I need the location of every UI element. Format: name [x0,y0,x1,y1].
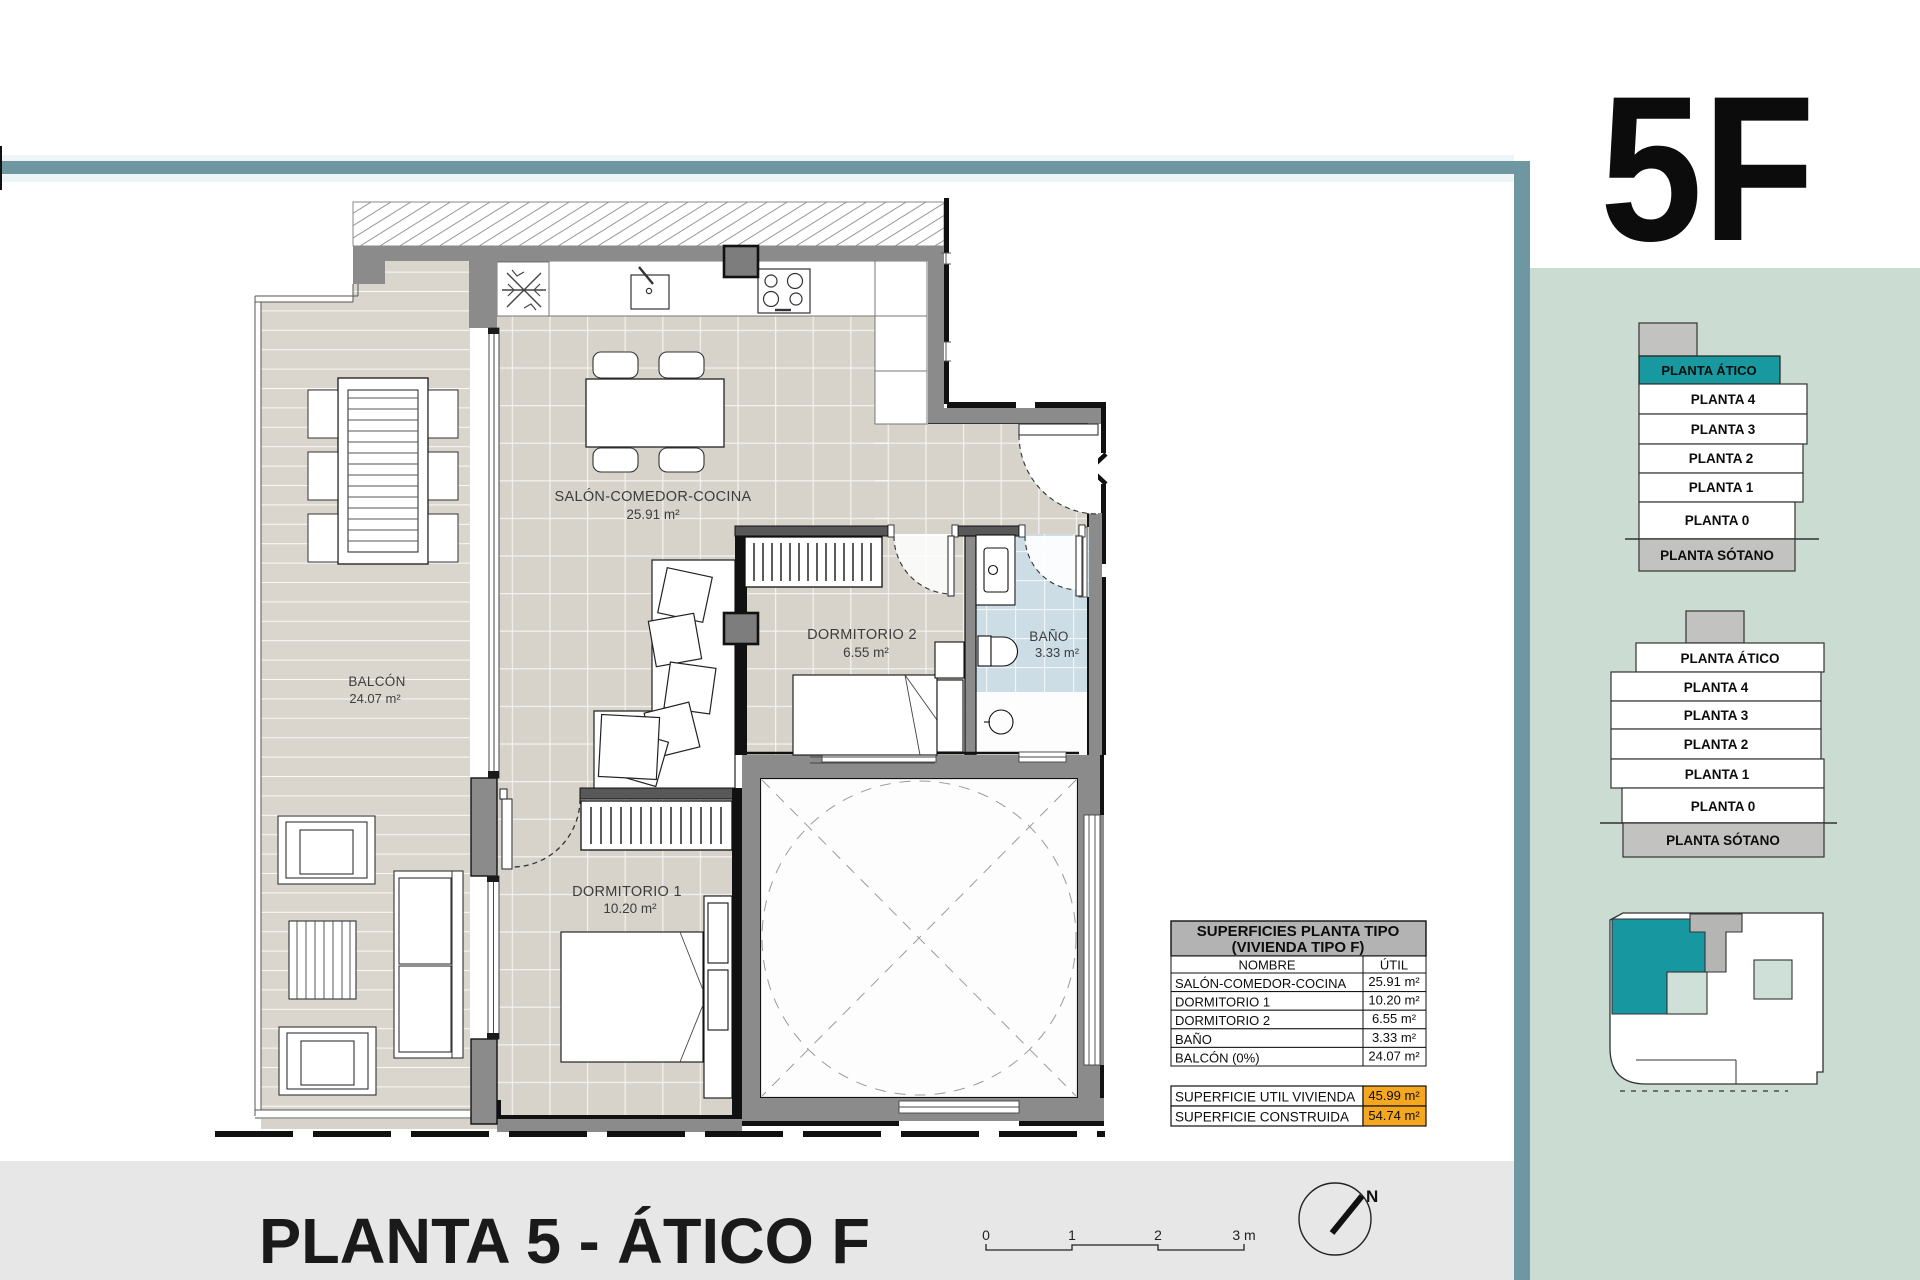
svg-text:5F: 5F [1600,53,1815,284]
svg-text:10.20 m²: 10.20 m² [1368,993,1420,1008]
svg-text:PLANTA SÓTANO: PLANTA SÓTANO [1666,833,1780,848]
svg-text:PLANTA 2: PLANTA 2 [1684,737,1749,752]
svg-text:PLANTA 0: PLANTA 0 [1691,799,1756,814]
svg-text:2: 2 [1154,1227,1162,1243]
svg-text:3.33 m²: 3.33 m² [1372,1030,1417,1045]
svg-text:PLANTA 4: PLANTA 4 [1691,392,1756,407]
svg-text:BAÑO: BAÑO [1029,629,1068,644]
svg-text:DORMITORIO 2: DORMITORIO 2 [1175,1013,1270,1028]
svg-text:25.91 m²: 25.91 m² [626,507,680,522]
svg-text:BALCÓN (0%): BALCÓN (0%) [1175,1050,1260,1065]
svg-text:PLANTA 5 - ÁTICO F: PLANTA 5 - ÁTICO F [259,1205,870,1277]
svg-text:DORMITORIO 2: DORMITORIO 2 [807,627,917,643]
svg-text:0: 0 [982,1227,990,1243]
svg-text:54.74 m²: 54.74 m² [1368,1108,1420,1123]
svg-text:SUPERFICIE UTIL VIVIENDA: SUPERFICIE UTIL VIVIENDA [1175,1090,1355,1105]
svg-text:SALÓN-COMEDOR-COCINA: SALÓN-COMEDOR-COCINA [1175,976,1347,991]
svg-text:PLANTA 0: PLANTA 0 [1685,513,1750,528]
svg-text:PLANTA SÓTANO: PLANTA SÓTANO [1660,548,1774,563]
svg-text:N: N [1366,1187,1378,1206]
svg-text:ÚTIL: ÚTIL [1380,958,1408,973]
svg-text:1: 1 [1068,1227,1076,1243]
svg-text:PLANTA ÁTICO: PLANTA ÁTICO [1661,363,1756,378]
svg-text:24.07 m²: 24.07 m² [1368,1048,1420,1063]
svg-text:DORMITORIO 1: DORMITORIO 1 [1175,995,1270,1010]
svg-text:PLANTA 1: PLANTA 1 [1689,480,1754,495]
svg-text:45.99 m²: 45.99 m² [1368,1088,1420,1103]
svg-text:3.33 m²: 3.33 m² [1035,645,1080,660]
svg-text:BALCÓN: BALCÓN [348,674,405,689]
svg-text:10.20 m²: 10.20 m² [603,901,657,916]
svg-text:DORMITORIO 1: DORMITORIO 1 [572,884,682,900]
svg-text:3 m: 3 m [1232,1227,1255,1243]
svg-text:PLANTA 3: PLANTA 3 [1691,422,1756,437]
svg-text:PLANTA 2: PLANTA 2 [1689,451,1754,466]
svg-text:6.55 m²: 6.55 m² [1372,1011,1417,1026]
svg-text:SALÓN-COMEDOR-COCINA: SALÓN-COMEDOR-COCINA [555,488,752,505]
svg-text:PLANTA 1: PLANTA 1 [1685,767,1750,782]
svg-text:SUPERFICIE CONSTRUIDA: SUPERFICIE CONSTRUIDA [1175,1110,1349,1125]
svg-text:25.91 m²: 25.91 m² [1368,974,1420,989]
svg-text:6.55 m²: 6.55 m² [843,645,889,660]
svg-text:BAÑO: BAÑO [1175,1032,1212,1047]
svg-text:PLANTA 3: PLANTA 3 [1684,708,1749,723]
svg-text:PLANTA ÁTICO: PLANTA ÁTICO [1681,651,1780,666]
svg-text:PLANTA 4: PLANTA 4 [1684,680,1749,695]
svg-text:24.07 m²: 24.07 m² [349,691,401,706]
svg-text:SUPERFICIES PLANTA TIPO: SUPERFICIES PLANTA TIPO [1197,923,1400,940]
svg-text:(VIVIENDA TIPO F): (VIVIENDA TIPO F) [1232,939,1365,956]
svg-text:NOMBRE: NOMBRE [1238,958,1295,973]
